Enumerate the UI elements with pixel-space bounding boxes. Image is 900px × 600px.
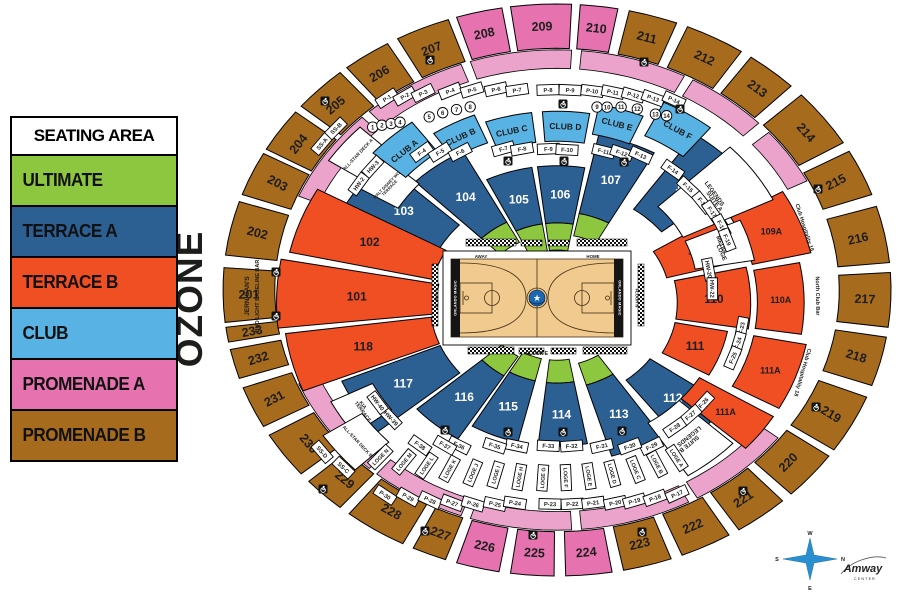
court: ORLANDO MAGICORLANDO MAGIC★AWAYHOMEFLOOR… [432, 239, 644, 357]
wheelchair-icon [560, 157, 569, 166]
box-P-6[interactable]: P-6 [484, 82, 508, 97]
icon-head [276, 313, 278, 315]
celebrity-row [548, 240, 569, 246]
compass-rose: WNES [775, 531, 845, 592]
floor-table-2[interactable]: 2 [377, 120, 387, 130]
bud-light-baseline-bar-label: BUD LIGHT BASELINE BAR [255, 260, 261, 333]
jernigans-label: JERNIGAN'S [244, 276, 251, 316]
celebrity-row [466, 239, 516, 246]
logo-sub: CENTER [854, 577, 876, 581]
floor-s-label: FLOOR S [435, 288, 440, 307]
icon-head [508, 158, 510, 160]
legend-row-label: ULTIMATE [12, 170, 103, 191]
box-label: F-32 [566, 444, 578, 451]
section-label: 110A [770, 295, 792, 305]
legend-row-promenade_b: PROMENADE B [12, 411, 176, 460]
legend-row-label: PROMENADE A [12, 374, 145, 395]
icon-head [445, 427, 447, 429]
wheelchair-icon [638, 528, 647, 537]
arena-seating-chart: { "legend": { "title": "SEATING AREA", "… [0, 0, 900, 600]
wheelchair-icon [640, 58, 649, 67]
legend-row-label: TERRACE A [12, 221, 117, 242]
icon-head [325, 98, 327, 100]
icon-head [816, 404, 818, 406]
section-label: 107 [601, 173, 621, 187]
wheelchair-icon [272, 312, 281, 321]
celebrity-row [521, 240, 542, 246]
icon-head [508, 429, 510, 431]
wheelchair-icon [676, 105, 685, 114]
floor-table-4[interactable]: 4 [395, 117, 405, 127]
section-label: 210 [585, 20, 607, 36]
box-P-9[interactable]: P-9 [559, 84, 581, 95]
compass-star [783, 538, 837, 580]
wheelchair-icon [529, 531, 538, 540]
legend-title: SEATING AREA [12, 118, 176, 156]
section-label: 113 [609, 407, 629, 421]
legend-row-label: PROMENADE B [12, 425, 145, 446]
box-P-23[interactable]: P-23 [539, 499, 561, 510]
box-label: F-9 [544, 147, 554, 153]
box-P-22[interactable]: P-22 [561, 498, 584, 510]
legend-row-label: CLUB [12, 323, 68, 344]
wheelchair-icon [504, 428, 513, 437]
section-label: 111A [760, 366, 781, 376]
compass-s: S [775, 557, 779, 563]
box-loge-h[interactable]: LOGE H [512, 463, 527, 490]
wheelchair-icon [421, 527, 430, 536]
floor-table-5[interactable]: 5 [424, 112, 434, 122]
wheelchair-icon [559, 428, 568, 437]
wheelchair-icon [559, 100, 568, 109]
circle-label: 13 [652, 112, 659, 118]
icon-head [533, 532, 535, 534]
legend-row-ultimate: ULTIMATE [12, 156, 176, 207]
north-club-bar-label: North Club Bar [814, 276, 821, 316]
icon-head [818, 186, 820, 188]
section-label: 109A [761, 227, 783, 237]
ultimate-strip[interactable] [546, 359, 574, 383]
section-label: 111A [715, 407, 736, 417]
away-label: AWAY [475, 254, 488, 259]
icon-head [743, 488, 745, 490]
compass-e: E [808, 586, 812, 592]
circle-label: 14 [663, 114, 670, 120]
floor-table-7[interactable]: 7 [451, 104, 461, 114]
legend-row-promenade_a: PROMENADE A [12, 360, 176, 411]
box-label: P-9 [565, 88, 575, 94]
section-label: 104 [456, 190, 476, 204]
celebrity-row [577, 239, 627, 246]
icon-head [563, 101, 565, 103]
box-loge-j[interactable]: LOGE J [463, 459, 483, 487]
celebrity-row [583, 347, 627, 354]
wheelchair-icon [504, 157, 513, 166]
legend-row-terrace_b: TERRACE B [12, 258, 176, 309]
wheelchair-icon [319, 485, 328, 494]
legend-row-terrace_a: TERRACE A [12, 207, 176, 258]
floor-table-8[interactable]: 8 [465, 102, 475, 112]
wheelchair-icon [321, 97, 330, 106]
section-label: 116 [455, 390, 475, 404]
box-label: P-23 [544, 502, 557, 508]
wheelchair-icon [272, 268, 281, 277]
box-P-12[interactable]: P-12 [621, 87, 645, 103]
section-label: CLUB D [549, 121, 581, 132]
section-label: 217 [854, 292, 875, 307]
wheelchair-icon [441, 426, 450, 435]
box-label: P-7 [512, 88, 522, 95]
icon-head [642, 529, 644, 531]
box-label: P-22 [566, 502, 579, 509]
icon-head [622, 428, 624, 430]
icon-head [430, 57, 432, 59]
icon-head [276, 269, 278, 271]
floor-e-label: FLOOR E [526, 351, 549, 357]
box-loge-i[interactable]: LOGE I [487, 461, 505, 489]
box-F-34[interactable]: F-34 [505, 439, 529, 454]
floor-n-label: FLOOR N [635, 289, 640, 308]
box-P-13[interactable]: P-13 [641, 89, 665, 106]
box-label: LOGE F [561, 467, 568, 488]
box-loge-g[interactable]: LOGE G [537, 465, 549, 492]
box-P-26[interactable]: P-26 [461, 496, 485, 512]
circle-label: 10 [604, 105, 611, 111]
icon-head [564, 158, 566, 160]
wheelchair-icon [739, 487, 748, 496]
section-label: 118 [354, 340, 374, 354]
wheelchair-icon [426, 56, 435, 65]
magic-star: ★ [533, 293, 541, 303]
section-label: 114 [552, 407, 572, 421]
floor-table-14[interactable]: 14 [661, 111, 671, 121]
floor-table-11[interactable]: 11 [616, 102, 626, 112]
box-P-10[interactable]: P-10 [581, 84, 604, 97]
box-label: F-33 [542, 444, 555, 451]
box-HW-22[interactable]: HW-22 [707, 278, 718, 300]
section-label: 111 [686, 339, 705, 353]
wheelchair-icon [618, 427, 627, 436]
box-F-32[interactable]: F-32 [560, 440, 583, 452]
box-loge-f[interactable]: LOGE F [560, 464, 572, 490]
celebrity-row [551, 348, 576, 354]
section-label: 224 [575, 545, 597, 561]
icon-head [323, 486, 325, 488]
floor-table-1[interactable]: 1 [368, 122, 378, 132]
legend-rows: ULTIMATETERRACE ATERRACE BCLUBPROMENADE … [12, 156, 176, 460]
icon-head [425, 528, 427, 530]
section-label: 105 [509, 192, 529, 206]
section-label: 117 [394, 377, 414, 391]
section-label: 225 [524, 545, 546, 560]
home-label: HOME [586, 254, 599, 259]
wheelchair-icon [814, 185, 823, 194]
box-label: HW-22 [708, 280, 714, 298]
celebrity-row [468, 347, 514, 354]
logo-name: Amway [843, 563, 883, 575]
compass-w: W [807, 531, 813, 537]
icon-head [624, 159, 626, 161]
circle-label: 12 [634, 107, 641, 113]
box-P-8[interactable]: P-8 [537, 84, 559, 95]
box-F-35[interactable]: F-35 [483, 437, 507, 454]
section-label: 115 [499, 399, 519, 413]
box-loge-k[interactable]: LOGE K [439, 455, 461, 483]
circle-label: 11 [618, 105, 625, 111]
box-F-33[interactable]: F-33 [537, 440, 559, 451]
magic-logo: ★ [529, 290, 545, 306]
box-P-21[interactable]: P-21 [582, 496, 605, 509]
icon-head [563, 429, 565, 431]
legend-row-label: TERRACE B [12, 272, 118, 293]
baseline-text-right: ORLANDO MAGIC [618, 280, 622, 316]
section-label: 209 [531, 19, 552, 34]
section-label: 101 [347, 289, 367, 303]
box-loge-l[interactable]: LOGE L [415, 452, 438, 479]
box-loge-b[interactable]: LOGE B [646, 450, 667, 478]
baseline-text-left: ORLANDO MAGIC [454, 280, 458, 316]
box-F-25[interactable]: F-25 [724, 346, 742, 370]
box-F-10[interactable]: F-10 [556, 144, 579, 156]
floor-table-13[interactable]: 13 [650, 109, 660, 119]
box-label: P-8 [543, 88, 553, 94]
legend-row-club: CLUB [12, 309, 176, 360]
icon-head [644, 59, 646, 61]
section-label: 106 [550, 187, 570, 201]
wheelchair-icon [620, 158, 629, 167]
box-loge-e[interactable]: LOGE E [582, 463, 596, 490]
wheelchair-icon [812, 403, 821, 412]
box-P-7[interactable]: P-7 [505, 83, 528, 96]
floor-table-12[interactable]: 12 [632, 104, 642, 114]
box-loge-c[interactable]: LOGE C [626, 455, 645, 483]
ultimate-strip[interactable] [546, 223, 574, 251]
seating-area-legend: SEATING AREA ULTIMATETERRACE ATERRACE BC… [10, 116, 178, 462]
floor-table-10[interactable]: 10 [602, 102, 612, 112]
amway-center-logo: AmwayCENTER [841, 557, 886, 581]
box-P-5[interactable]: P-5 [460, 82, 484, 98]
box-loge-d[interactable]: LOGE D [604, 460, 621, 488]
floor-table-9[interactable]: 9 [592, 102, 602, 112]
floor-table-6[interactable]: 6 [438, 108, 448, 118]
box-label: F-10 [561, 148, 573, 155]
icon-head [680, 106, 682, 108]
section-label: 102 [360, 235, 380, 249]
